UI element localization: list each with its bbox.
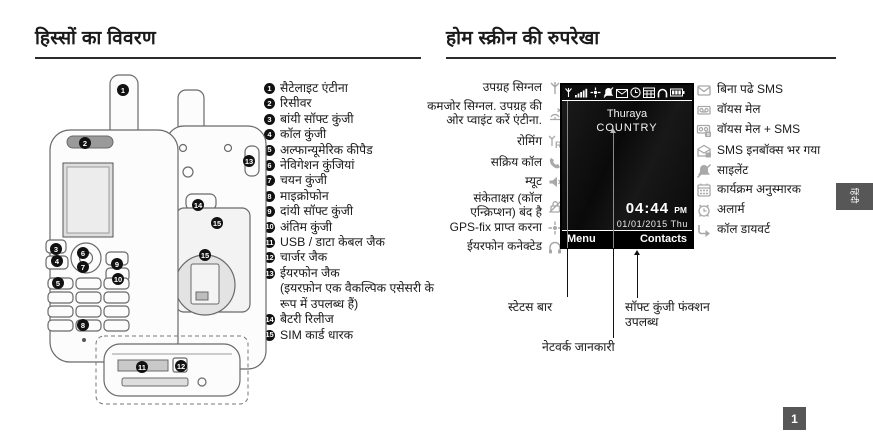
diagram-callout-7: 7 xyxy=(77,261,89,273)
list-item: 11USB / डाटा केबल जैक xyxy=(264,235,444,250)
item-label: USB / डाटा केबल जैक xyxy=(280,235,385,250)
clock-time: 04:44 PM xyxy=(626,200,687,217)
list-item: 8माइक्रोफोन xyxy=(264,189,444,204)
list-item: 4कॉल कुंजी xyxy=(264,127,444,142)
item-label: अंतिम कुंजी xyxy=(280,220,332,235)
item-label: चयन कुंजी xyxy=(280,173,327,188)
diagram-callout-15a: 15 xyxy=(211,217,223,229)
headset-icon xyxy=(657,88,668,98)
item-label: बांयी सॉफ्ट कुंजी xyxy=(280,112,354,127)
signal-strength-icon xyxy=(575,87,588,98)
label-mute: म्यूट xyxy=(525,174,563,190)
item-note: (इयरफ़ोन एक वैकल्पिक एसेसरी के रूप में उ… xyxy=(280,281,448,312)
item-label: SIM कार्ड धारक xyxy=(280,328,353,343)
diagram-callout-4: 4 xyxy=(51,255,63,267)
time-meridiem: PM xyxy=(674,205,687,215)
diagram-callout-9: 9 xyxy=(111,258,123,270)
list-item: 13ईयरफोन जैक xyxy=(264,266,444,281)
softkey-callout-line xyxy=(637,255,638,298)
list-item: 5अल्फान्यूमेरिक कीपैड xyxy=(264,143,444,158)
silent-icon xyxy=(603,87,614,98)
label-voice-mail: वॉयस मेल xyxy=(696,102,761,118)
home-screen-mockup: Thuraya COUNTRY 04:44 PM 01/01/2015 Thu … xyxy=(560,83,694,249)
label-silent: साइलेंट xyxy=(696,163,748,179)
network-name: Thuraya COUNTRY xyxy=(562,108,692,135)
network-info-label: नेटवर्क जानकारी xyxy=(542,340,615,355)
item-label: कॉल कुंजी xyxy=(280,127,326,142)
silent-bell-icon xyxy=(696,163,712,179)
label-roaming: रोमिंग R xyxy=(517,134,563,150)
label-schedule-reminder: कार्यक्रम अनुस्मारक xyxy=(696,182,801,198)
voice-mail-sms-icon: S xyxy=(696,122,712,138)
diagram-callout-3: 3 xyxy=(50,243,62,255)
screen-main-area: Thuraya COUNTRY 04:44 PM 01/01/2015 Thu xyxy=(562,101,692,230)
page-number: 1 xyxy=(783,407,806,430)
label-voice-mail-sms: S वॉयस मेल + SMS xyxy=(696,122,800,138)
network-info-callout-line xyxy=(613,248,614,338)
label-weak-signal: कमजोर सिग्नल. उपग्रह की ओर प्वाइंट करें … xyxy=(417,100,563,127)
item-label: नेविगेशन कुंजियां xyxy=(280,158,354,173)
section-title-home-screen: होम स्क्रीन की रुपरेखा xyxy=(446,24,836,59)
call-divert-icon xyxy=(696,222,712,238)
softkey-menu: Menu xyxy=(567,233,596,245)
softkey-functions-label: सॉफ्ट कुंजी फंक्शन उपलब्ध xyxy=(625,300,737,330)
softkey-contacts: Contacts xyxy=(640,233,687,245)
softkey-bar: Menu Contacts xyxy=(562,230,692,247)
label-call-divert: कॉल डायवर्ट xyxy=(696,222,770,238)
status-bar-label: स्टेटस बार xyxy=(508,300,552,315)
diagram-callout-11: 11 xyxy=(136,361,148,373)
network-info-callout-line-inner xyxy=(613,133,614,248)
label-alarm: अलार्म xyxy=(696,202,745,218)
list-item: 10अंतिम कुंजी xyxy=(264,220,444,235)
list-item: 15SIM कार्ड धारक xyxy=(264,328,444,343)
diagram-callout-5: 5 xyxy=(52,277,64,289)
label-gps-fix: GPS-fix प्राप्त करना xyxy=(450,220,563,236)
item-label: चार्जर जैक xyxy=(280,250,327,265)
calendar-icon xyxy=(643,87,655,98)
parts-diagram xyxy=(40,70,270,410)
item-label: ईयरफोन जैक xyxy=(280,266,340,281)
diagram-callout-2: 2 xyxy=(79,137,91,149)
diagram-callout-6: 6 xyxy=(77,247,89,259)
label-satellite-signal: उपग्रह सिग्नल xyxy=(483,80,563,96)
diagram-callout-1: 1 xyxy=(117,84,129,96)
item-label: दांयी सॉफ्ट कुंजी xyxy=(280,204,353,219)
schedule-reminder-icon xyxy=(696,182,712,198)
list-item: 14बैटरी रिलीज xyxy=(264,312,444,327)
sms-inbox-full-icon xyxy=(696,143,712,159)
diagram-callout-15b: 15 xyxy=(199,249,211,261)
item-label: बैटरी रिलीज xyxy=(280,312,334,327)
unread-sms-icon xyxy=(696,82,712,98)
diagram-callout-12: 12 xyxy=(175,360,187,372)
sms-inbox-icon xyxy=(616,88,628,98)
list-item: 6नेविगेशन कुंजियां xyxy=(264,158,444,173)
clock-icon xyxy=(630,87,641,98)
voice-mail-icon xyxy=(696,102,712,118)
item-label: सैटेलाइट एंटीना xyxy=(280,81,348,96)
status-bar-callout-line xyxy=(567,249,568,297)
list-item: 9दांयी सॉफ्ट कुंजी xyxy=(264,204,444,219)
gps-icon xyxy=(590,87,601,98)
list-item: 7चयन कुंजी xyxy=(264,173,444,188)
status-bar xyxy=(562,85,692,101)
manual-page: हिस्सों का विवरण होम स्क्रीन की रुपरेखा xyxy=(0,0,873,448)
diagram-callout-8: 8 xyxy=(77,319,89,331)
section-title-parts: हिस्सों का विवरण xyxy=(35,24,421,59)
label-earphone-connected: ईयरफोन कनेक्टेड xyxy=(467,239,563,255)
item-label: रिसीवर xyxy=(280,96,312,111)
list-item: 1सैटेलाइट एंटीना xyxy=(264,81,444,96)
item-label: अल्फान्यूमेरिक कीपैड xyxy=(280,143,373,158)
battery-icon xyxy=(670,88,685,97)
satellite-icon xyxy=(564,87,573,98)
list-item: 12चार्जर जैक xyxy=(264,250,444,265)
alarm-icon xyxy=(696,202,712,218)
clock-date: 01/01/2015 Thu xyxy=(617,219,688,229)
label-unread-sms: बिना पढे SMS xyxy=(696,82,783,98)
status-bar-callout-line-inner xyxy=(567,101,568,248)
diagram-callout-13: 13 xyxy=(243,155,255,167)
language-side-tab: हिंदी xyxy=(836,183,873,210)
label-sms-inbox-full: SMS इनबॉक्स भर गया xyxy=(696,143,820,159)
item-label: माइक्रोफोन xyxy=(280,189,329,204)
diagram-callout-14: 14 xyxy=(192,199,204,211)
label-active-call: सक्रिय कॉल xyxy=(491,155,563,171)
label-encryption-off: संकेताक्षर (कॉल एन्क्रिप्शन) बंद है xyxy=(444,192,563,219)
diagram-callout-10: 10 xyxy=(112,273,124,285)
